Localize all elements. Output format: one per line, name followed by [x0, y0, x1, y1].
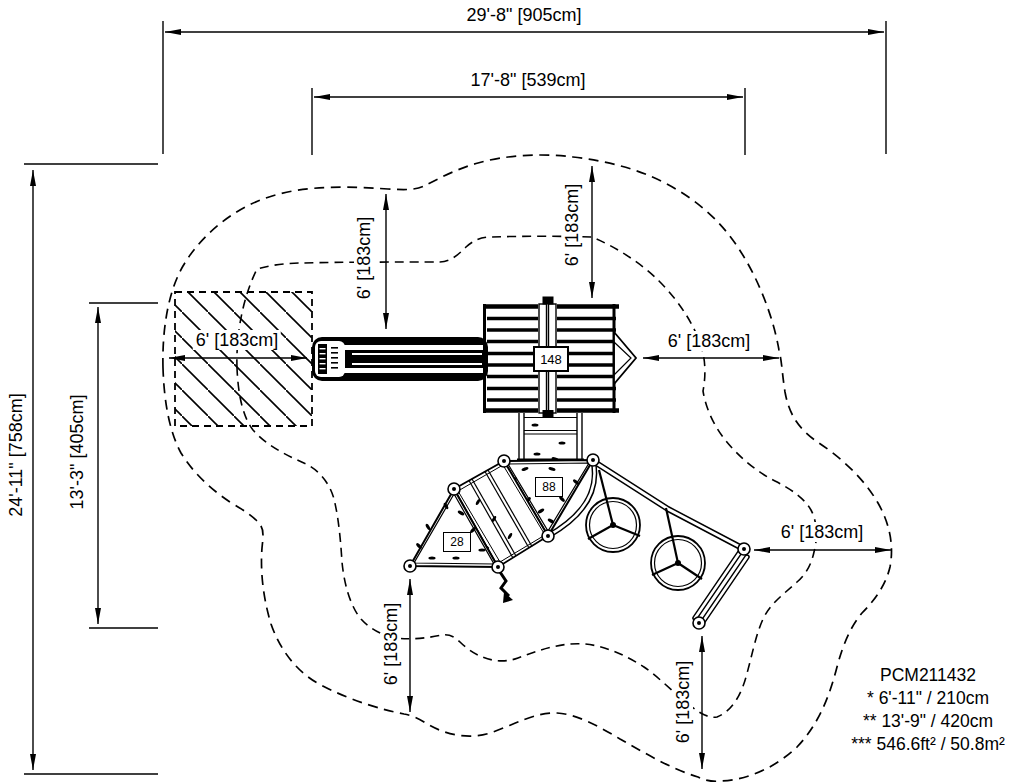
ridge-tab-top	[543, 297, 554, 305]
model-number: PCM211432	[816, 664, 1024, 687]
dim-overall-height-label: 24'-11" [758cm]	[6, 390, 26, 520]
dim-equipment-width-label: 17'-8" [539cm]	[468, 70, 589, 90]
note-deck-height: ** 13'-9" / 420cm	[816, 710, 1024, 733]
balance-rails	[695, 552, 747, 623]
hanging-climber	[500, 572, 513, 603]
spinner-beam	[593, 461, 744, 549]
slide	[312, 337, 488, 381]
notes-block: PCM211432 * 6'-11" / 210cm ** 13'-9" / 4…	[816, 664, 1024, 756]
dim-overall-width-label: 29'-8" [905cm]	[464, 5, 585, 25]
deck-tag-148: 148	[533, 346, 569, 372]
deck-tag-28: 28	[443, 532, 471, 552]
dimension-lines	[24, 21, 891, 774]
dim-clearance-top-left-label: 6' [183cm]	[354, 214, 374, 302]
dim-clearance-surfacing-label: 6' [183cm]	[193, 330, 281, 350]
dim-equipment-height-label: 13'-3" [405cm]	[67, 392, 87, 513]
note-use-zone-area: *** 546.6ft² / 50.8m²	[816, 733, 1024, 756]
dim-clearance-top-middle-label: 6' [183cm]	[562, 181, 582, 269]
ridge-tab-bottom	[543, 410, 554, 418]
spinner-wheel-2	[651, 508, 705, 590]
climber-panel	[614, 332, 636, 384]
deck-tag-88: 88	[535, 477, 563, 497]
dim-clearance-right-label: 6' [183cm]	[665, 331, 753, 351]
dim-clearance-bottom-right-h-label: 6' [183cm]	[778, 522, 866, 542]
site-plan-page: 29'-8" [905cm] 17'-8" [539cm] 24'-11" [7…	[0, 0, 1024, 784]
dim-clearance-bottom-right-label: 6' [183cm]	[673, 658, 693, 746]
bridge	[517, 413, 584, 461]
note-fall-height: * 6'-11" / 210cm	[816, 687, 1024, 710]
dim-clearance-bottom-left-label: 6' [183cm]	[381, 600, 401, 688]
